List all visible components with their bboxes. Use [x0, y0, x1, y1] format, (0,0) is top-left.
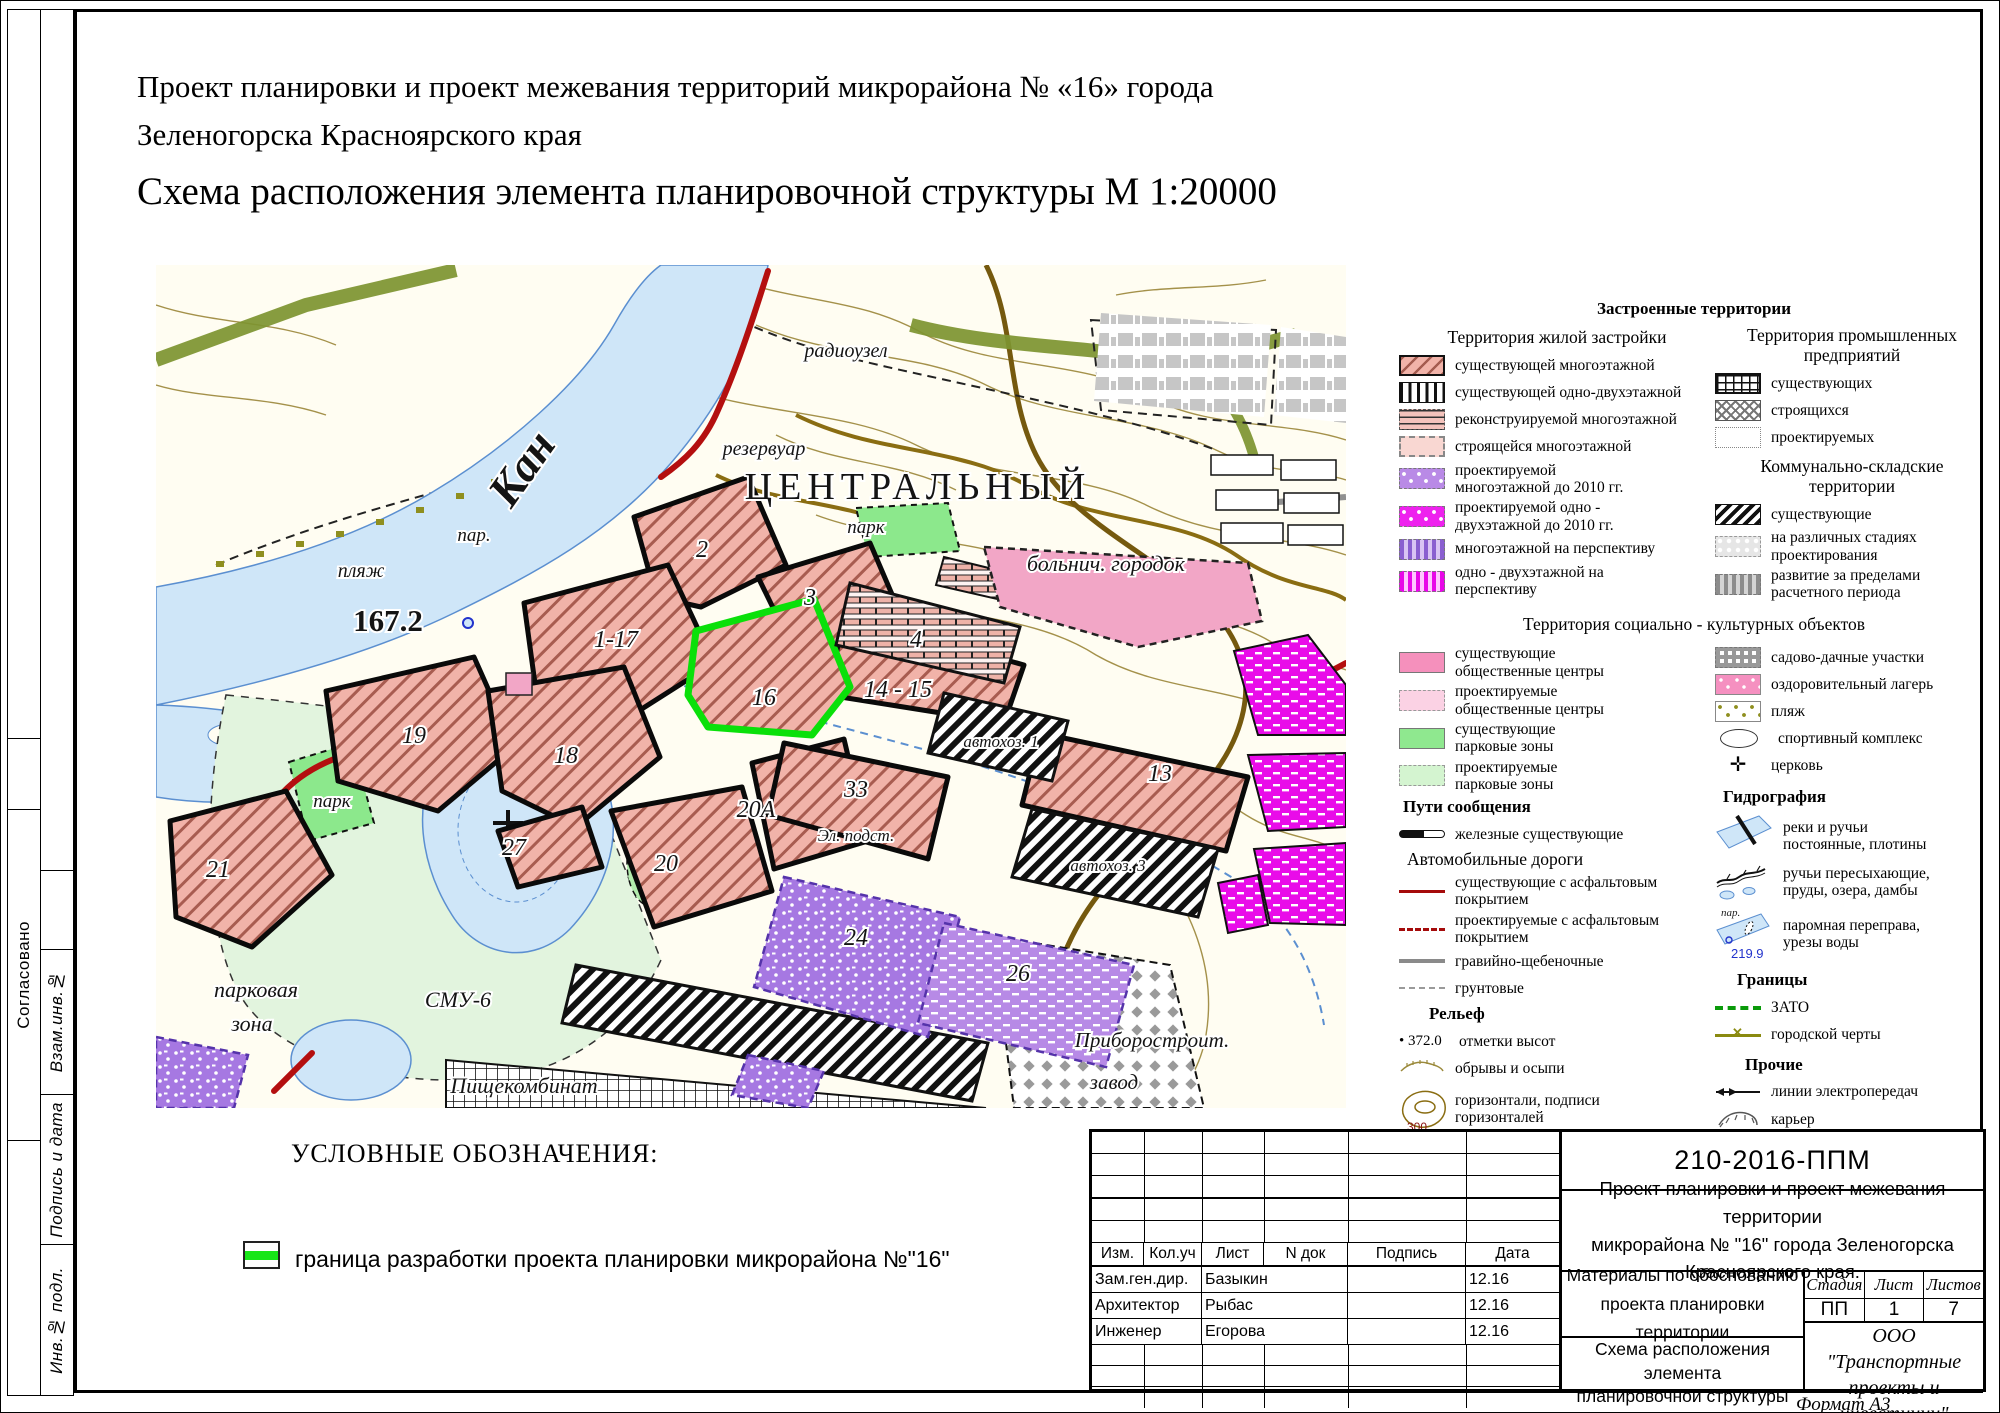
- stamp-right-part: 210-2016-ППМ Проект планировки и проект …: [1562, 1132, 1983, 1389]
- signer-row: Зам.ген.дир. Базыкин 12.16: [1092, 1267, 1559, 1293]
- signer-date: 12.16: [1466, 1267, 1559, 1292]
- hydro-header: Гидрография: [1723, 787, 1989, 806]
- legend-item: ЗАТО: [1715, 996, 1989, 1020]
- block-2-label: 2: [696, 537, 708, 563]
- legend-item: оздоровительный лагерь: [1715, 672, 1989, 696]
- zato-border-symbol: [1715, 1006, 1761, 1010]
- stamp-empty-row: [1092, 1199, 1559, 1221]
- legend-label: одно - двухэтажной на перспективу: [1455, 564, 1625, 599]
- drawing-sheet: Согласовано Взам.инв.№ Подпись и дата Ин…: [0, 0, 2000, 1413]
- legend-label: проектируемой одно - двухэтажной до 2010…: [1455, 499, 1655, 534]
- swatch-res-perspective-multi: [1399, 539, 1445, 560]
- sidebar-cell: [7, 738, 41, 810]
- legend-residential-section: Территория жилой застройки существующей …: [1399, 326, 1715, 605]
- communal-title: Коммунально-складские территории: [1737, 457, 1967, 496]
- legend-label: строящихся: [1771, 402, 1849, 419]
- stage-value: ПП: [1805, 1299, 1865, 1321]
- legend-item: проектируемой многоэтажной до 2010 гг.: [1399, 462, 1715, 497]
- format-label: Формат А3: [1796, 1394, 1891, 1413]
- legend-label: на различных стадиях проектирования: [1771, 529, 1946, 564]
- park-zone-label1: парковая: [214, 977, 298, 1002]
- urban-area-gray: [1094, 313, 1271, 417]
- pribor-label2: завод: [1089, 1070, 1138, 1094]
- sidebar-cell-podpis: Подпись и дата: [40, 1094, 74, 1245]
- swatch-com-existing: [1715, 504, 1761, 525]
- road-gravel-symbol: [1399, 959, 1445, 963]
- swatch-ind-building: [1715, 400, 1761, 421]
- signer-date: 12.16: [1466, 1293, 1559, 1318]
- rezervuar-label: резервуар: [721, 438, 806, 460]
- elevation-label: 167.2: [353, 603, 423, 638]
- page-title-line1: Проект планировки и проект межевания тер…: [137, 63, 1697, 111]
- avtohoz1-label: автохоз. 1: [963, 732, 1038, 751]
- legend-item: существующие общественные центры: [1399, 645, 1715, 680]
- swatch-res-projected-multi: [1399, 468, 1445, 489]
- park-left-label: парк: [313, 791, 352, 812]
- title-block: Проект планировки и проект межевания тер…: [137, 63, 1697, 214]
- col-ndok: N док: [1264, 1243, 1348, 1265]
- swatch-res-under-construction: [1399, 436, 1445, 457]
- legend-item: на различных стадиях проектирования: [1715, 529, 1989, 564]
- legend-label: проектируемые с асфальтовым покрытием: [1455, 912, 1665, 947]
- swatch-health-camp: [1715, 674, 1761, 695]
- legend-label: развитие за пределами расчетного периода: [1771, 567, 1956, 602]
- stage-value-row: ПП 1 7: [1805, 1299, 1983, 1321]
- swatch-res-existing-low: [1399, 382, 1445, 403]
- legend-label: гравийно-щебеночные: [1455, 953, 1604, 970]
- sheet-value: 1: [1865, 1299, 1925, 1321]
- stamp-empty-row: [1092, 1176, 1559, 1199]
- page-subtitle: Схема расположения элемента планировочно…: [137, 169, 1697, 214]
- sheets-value: 7: [1924, 1299, 1983, 1321]
- block-16-label: 16: [752, 685, 776, 711]
- stage-label: Стадия: [1805, 1272, 1865, 1298]
- swatch-social-projected: [1399, 690, 1445, 711]
- legend-item: развитие за пределами расчетного периода: [1715, 567, 1989, 602]
- stamp-empty-row: [1092, 1387, 1559, 1408]
- pribor-label1: Приборостроит.: [1074, 1028, 1230, 1052]
- legend-label: горизонтали, подписи горизонталей: [1455, 1092, 1625, 1127]
- legend-label: грунтовые: [1455, 980, 1524, 997]
- park-top-label: парк: [847, 517, 886, 538]
- river-dam-symbol: [1715, 814, 1773, 858]
- legend-label: существующие парковые зоны: [1455, 721, 1595, 756]
- signer-signature: [1348, 1267, 1466, 1292]
- legend-item: существующей одно-двухэтажной: [1399, 381, 1715, 405]
- col-podpis: Подпись: [1348, 1243, 1466, 1265]
- stamp-bottom: Материалы по обоснованию проекта планиро…: [1562, 1272, 1983, 1389]
- block-26-label: 26: [1006, 961, 1030, 987]
- block-4-label: 4: [910, 627, 922, 653]
- sidebar-cell: [7, 9, 41, 739]
- legend-header-social: Территория социально - культурных объект…: [1399, 615, 1989, 635]
- church-symbol: ✛: [1715, 754, 1761, 776]
- legend-item: проектируемых: [1715, 425, 1989, 449]
- legend-item: существующей многоэтажной: [1399, 354, 1715, 378]
- stage-table: Стадия Лист Листов ПП 1 7: [1805, 1272, 1983, 1323]
- legend-label: проектируемые парковые зоны: [1455, 759, 1595, 794]
- col-izm: Изм.: [1092, 1243, 1144, 1265]
- project-border-label: граница разработки проекта планировки ми…: [295, 1246, 950, 1273]
- legend-label: пляж: [1771, 703, 1805, 720]
- materials-cell: Материалы по обоснованию проекта планиро…: [1562, 1272, 1803, 1338]
- sheets-label: Листов: [1924, 1272, 1983, 1298]
- legend-item: проектируемые общественные центры: [1399, 683, 1715, 718]
- legend-social-transport-section: существующие общественные центры проекти…: [1399, 642, 1715, 1138]
- road-asphalt-existing-symbol: [1399, 890, 1445, 893]
- stamp-empty-row: [1092, 1221, 1559, 1243]
- railway-symbol: [1399, 830, 1445, 838]
- legend-label: существующих: [1771, 375, 1872, 392]
- sport-complex-symbol: [1720, 729, 1758, 748]
- swatch-res-existing-multi: [1399, 355, 1445, 376]
- signer-row: Инженер Егорова 12.16: [1092, 1319, 1559, 1345]
- legend-item: ручьи пересыхающие, пруды, озера, дамбы: [1715, 861, 1989, 903]
- legend-industrial-section: Территория промышленных предприятий суще…: [1715, 326, 1989, 605]
- vzam-label: Взам.инв.№: [47, 971, 67, 1072]
- swatch-garden-plots: [1715, 647, 1761, 668]
- avtohoz3-label: автохоз. 3: [1070, 856, 1145, 875]
- signer-role: Инженер: [1092, 1319, 1202, 1344]
- signer-role: Зам.ген.дир.: [1092, 1267, 1202, 1292]
- signer-signature: [1348, 1319, 1466, 1344]
- legend-label: существующей многоэтажной: [1455, 357, 1655, 374]
- legend-item: спортивный комплекс: [1715, 726, 1989, 750]
- park-zone-label2: зона: [230, 1011, 272, 1036]
- swatch-social-existing: [1399, 652, 1445, 673]
- block-1-17-label: 1-17: [594, 627, 639, 653]
- stamp-header-row: Изм. Кол.уч Лист N док Подпись Дата: [1092, 1243, 1559, 1267]
- contours-symbol: 300: [1399, 1083, 1445, 1135]
- other-header: Прочие: [1745, 1055, 1989, 1074]
- signer-date: 12.16: [1466, 1319, 1559, 1344]
- beach-label: пляж: [338, 560, 385, 582]
- legend-label: садово-дачные участки: [1771, 649, 1924, 666]
- legend-label: отметки высот: [1459, 1033, 1555, 1050]
- cliffs-symbol: [1399, 1057, 1445, 1079]
- legend-hydro-section: садово-дачные участки оздоровительный ла…: [1715, 642, 1989, 1138]
- urban-area-gray: [1274, 327, 1346, 423]
- project-border-swatch: [243, 1241, 280, 1269]
- legend-label: обрывы и осыпи: [1455, 1060, 1565, 1077]
- company-line1: ООО "Транспортные: [1827, 1325, 1961, 1373]
- stamp-middle-col: Материалы по обоснованию проекта планиро…: [1562, 1272, 1805, 1389]
- pishchekombinat-label: Пищекомбинат: [449, 1073, 597, 1098]
- plan-map: Кан 167.2 пляж пар. радиоузел резервуар …: [156, 265, 1346, 1108]
- swatch-ind-existing: [1715, 373, 1761, 394]
- water-level-value: 219.9: [1731, 946, 1764, 961]
- scheme-line2: планировочной структуры: [1577, 1386, 1789, 1406]
- block-20a-label: 20А: [737, 797, 776, 823]
- legend-label: оздоровительный лагерь: [1771, 676, 1933, 693]
- legend-item: ✕городской черты: [1715, 1023, 1989, 1047]
- sidebar-cell: [40, 9, 74, 871]
- industrial-title: Территория промышленных предприятий: [1727, 326, 1977, 365]
- legend-label: городской черты: [1771, 1026, 1881, 1043]
- substation-label: Эл. подст.: [818, 826, 895, 845]
- gost-sidebar: Согласовано Взам.инв.№ Подпись и дата Ин…: [7, 9, 74, 1396]
- city-border-symbol: ✕: [1715, 1028, 1761, 1042]
- legend-label: железные существующие: [1455, 826, 1623, 843]
- legend-item: строящейся многоэтажной: [1399, 435, 1715, 459]
- scheme-line1: Схема расположения элемента: [1595, 1339, 1770, 1383]
- legend-item: многоэтажной на перспективу: [1399, 537, 1715, 561]
- sidebar-cell: [40, 870, 74, 950]
- conditional-legend-header: УСЛОВНЫЕ ОБОЗНАЧЕНИЯ:: [291, 1139, 659, 1169]
- legend-item: существующих: [1715, 371, 1989, 395]
- stamp-stage-col: Стадия Лист Листов ПП 1 7 ООО "Транспорт…: [1805, 1272, 1983, 1389]
- elevation-marker: [463, 618, 473, 628]
- swatch-res-reconstructed: [1399, 409, 1445, 430]
- legend-item: проектируемые с асфальтовым покрытием: [1399, 912, 1715, 947]
- sidebar-cell: [7, 1140, 41, 1396]
- stage-header-row: Стадия Лист Листов: [1805, 1272, 1983, 1299]
- sidebar-cell-soglasovano: Согласовано: [7, 809, 41, 1141]
- legend-label: существующие: [1771, 506, 1872, 523]
- stream-pond-symbol: [1715, 861, 1773, 903]
- block-21-label: 21: [206, 857, 230, 883]
- signature-table: Изм. Кол.уч Лист N док Подпись Дата Зам.…: [1092, 1132, 1562, 1389]
- green-border-band: [245, 1251, 278, 1260]
- stamp-empty-row: [1092, 1345, 1559, 1366]
- legend-item: обрывы и осыпи: [1399, 1056, 1715, 1080]
- page-title-line2: Зеленогорска Красноярского края: [137, 111, 1697, 159]
- legend-label: карьер: [1771, 1111, 1815, 1128]
- col-list: Лист: [1202, 1243, 1264, 1265]
- project-name-line1: Проект планировки и проект межевания тер…: [1600, 1178, 1946, 1227]
- legend-label: проектируемые общественные центры: [1455, 683, 1620, 718]
- legend-label: строящейся многоэтажной: [1455, 438, 1631, 455]
- scheme-cell: Схема расположения элемента планировочно…: [1562, 1338, 1803, 1413]
- swatch-ind-projected: [1715, 427, 1761, 448]
- col-koluch: Кол.уч: [1144, 1243, 1202, 1265]
- block-14-15-label: 14 - 15: [864, 677, 932, 703]
- borders-header: Границы: [1737, 970, 1989, 989]
- residential-title: Территория жилой застройки: [1399, 328, 1715, 348]
- legend-item: реки и ручьи постоянные, плотины: [1715, 814, 1989, 858]
- block-20-label: 20: [654, 851, 678, 877]
- legend-header-built: Застроенные территории: [1399, 299, 1989, 318]
- ferry-label: пар.: [457, 525, 490, 546]
- legend-item: строящихся: [1715, 398, 1989, 422]
- swatch-beach: [1715, 701, 1761, 722]
- legend-label: реконструируемой многоэтажной: [1455, 411, 1677, 428]
- legend-item: существующие: [1715, 502, 1989, 526]
- legend-label: церковь: [1771, 757, 1823, 774]
- materials-line2: проекта планировки территории: [1601, 1294, 1765, 1343]
- inv-label: Инв.№ подл.: [47, 1267, 67, 1374]
- ferry-symbol: пар.219.9: [1715, 906, 1773, 962]
- swatch-res-perspective-low: [1399, 571, 1445, 592]
- legend-item: линии электропередач: [1715, 1080, 1989, 1104]
- central-district-label: ЦЕНТРАЛЬНЫЙ: [745, 466, 1092, 508]
- legend-item: пляж: [1715, 699, 1989, 723]
- road-asphalt-projected-symbol: [1399, 928, 1445, 931]
- block-19-label: 19: [402, 723, 426, 749]
- legend-item: одно - двухэтажной на перспективу: [1399, 564, 1715, 599]
- block-3-label: 3: [803, 585, 816, 611]
- ferry-text: пар.: [1721, 907, 1740, 919]
- signer-row: Архитектор Рыбас 12.16: [1092, 1293, 1559, 1319]
- legend-item: реконструируемой многоэтажной: [1399, 408, 1715, 432]
- swatch-com-projected: [1715, 536, 1761, 557]
- legend-label: ЗАТО: [1771, 999, 1809, 1016]
- road-dirt-symbol: [1399, 987, 1445, 989]
- smu6-label: СМУ-6: [425, 987, 491, 1012]
- legend-item: пар.219.9 паромная переправа, урезы воды: [1715, 906, 1989, 962]
- spot-height-symbol: • 372.0: [1399, 1033, 1455, 1050]
- legend-item: проектируемые парковые зоны: [1399, 759, 1715, 794]
- sidebar-cell-inv: Инв.№ подл.: [40, 1244, 74, 1396]
- sheet-label: Лист: [1865, 1272, 1925, 1298]
- roads-title: Автомобильные дороги: [1407, 850, 1715, 870]
- legend-item: существующие с асфальтовым покрытием: [1399, 874, 1715, 909]
- spot-height-value: 372.0: [1408, 1033, 1442, 1049]
- legend-label: проектируемых: [1771, 429, 1874, 446]
- legend-item: гравийно-щебеночные: [1399, 949, 1715, 973]
- legend-item: проектируемой одно - двухэтажной до 2010…: [1399, 499, 1715, 534]
- swatch-park-existing: [1399, 728, 1445, 749]
- legend-label: ручьи пересыхающие, пруды, озера, дамбы: [1783, 865, 1963, 900]
- legend-item: • 372.0отметки высот: [1399, 1029, 1715, 1053]
- legend-item: ✛церковь: [1715, 753, 1989, 777]
- block-18-label: 18: [554, 743, 578, 769]
- legend-label: спортивный комплекс: [1778, 730, 1923, 747]
- legend-label: проектируемой многоэтажной до 2010 гг.: [1455, 462, 1655, 497]
- legend-item: грунтовые: [1399, 976, 1715, 1000]
- hospital-label: больнич. городок: [1027, 551, 1186, 576]
- signer-role: Архитектор: [1092, 1293, 1202, 1318]
- soglasovano-label: Согласовано: [14, 921, 34, 1029]
- block-33-label: 33: [843, 777, 868, 803]
- block-27-label: 27: [502, 835, 527, 861]
- sidebar-cell-vzam: Взам.инв.№: [40, 949, 74, 1095]
- materials-line1: Материалы по обоснованию: [1567, 1265, 1799, 1285]
- col-data: Дата: [1466, 1243, 1559, 1265]
- stamp-empty-row: [1092, 1132, 1559, 1154]
- block-13-label: 13: [1148, 761, 1172, 787]
- legend-label: существующие общественные центры: [1455, 645, 1620, 680]
- block-24-label: 24: [844, 925, 868, 951]
- swatch-park-projected: [1399, 765, 1445, 786]
- legend-label: паромная переправа, урезы воды: [1783, 917, 1953, 952]
- legend-label: реки и ручьи постоянные, плотины: [1783, 819, 1953, 854]
- powerline-symbol: [1715, 1085, 1761, 1099]
- legend-item: железные существующие: [1399, 822, 1715, 846]
- relief-header: Рельеф: [1429, 1004, 1715, 1023]
- signer-name: Егорова: [1202, 1319, 1348, 1344]
- signer-signature: [1348, 1293, 1466, 1318]
- stamp-empty-row: [1092, 1154, 1559, 1176]
- legend-label: существующие с асфальтовым покрытием: [1455, 874, 1665, 909]
- title-block-stamp: Изм. Кол.уч Лист N док Подпись Дата Зам.…: [1089, 1129, 1986, 1392]
- transport-header: Пути сообщения: [1403, 797, 1715, 816]
- map-legend: Застроенные территории Территория жилой …: [1399, 295, 1989, 1138]
- legend-item: существующие парковые зоны: [1399, 721, 1715, 756]
- swatch-com-development: [1715, 574, 1761, 595]
- legend-item: 300 горизонтали, подписи горизонталей: [1399, 1083, 1715, 1135]
- signer-name: Базыкин: [1202, 1267, 1348, 1292]
- legend-item: садово-дачные участки: [1715, 645, 1989, 669]
- small-pink-site: [506, 673, 532, 695]
- podpis-label: Подпись и дата: [47, 1102, 67, 1238]
- signer-name: Рыбас: [1202, 1293, 1348, 1318]
- legend-label: существующей одно-двухэтажной: [1455, 384, 1681, 401]
- stamp-empty-row: [1092, 1366, 1559, 1387]
- legend-label: линии электропередач: [1771, 1083, 1918, 1100]
- radiouzel-label: радиоузел: [802, 340, 888, 362]
- swatch-res-projected-low: [1399, 506, 1445, 527]
- legend-label: многоэтажной на перспективу: [1455, 540, 1655, 557]
